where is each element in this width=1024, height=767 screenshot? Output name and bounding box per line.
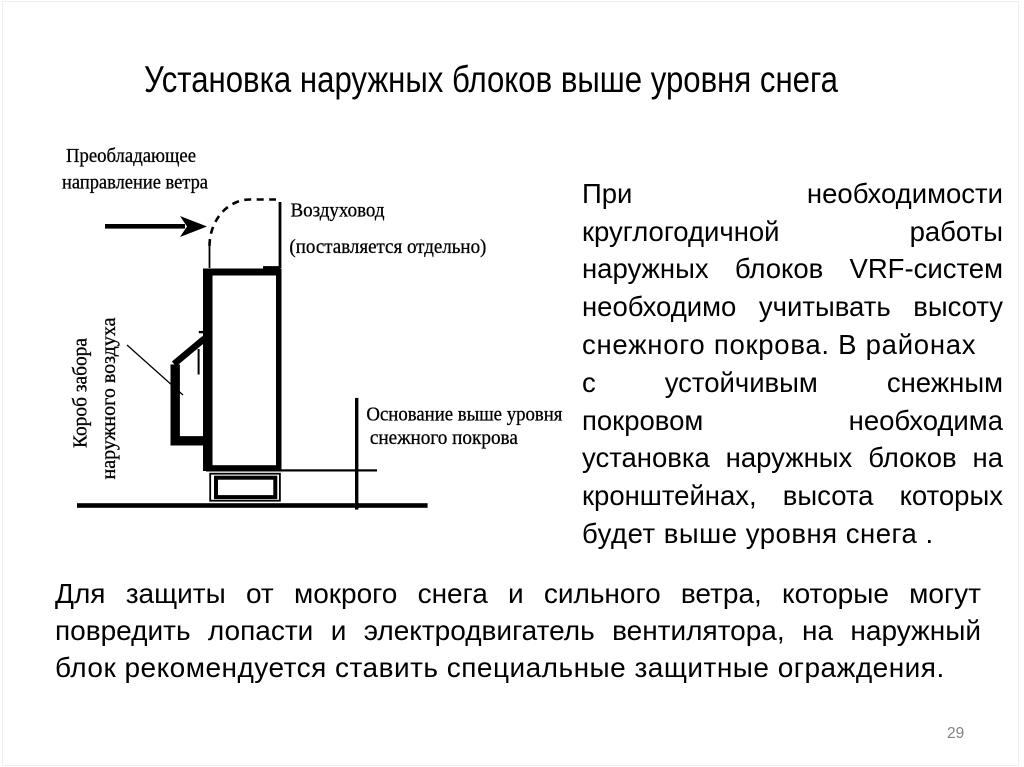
svg-text:(поставляется отдельно): (поставляется отдельно) <box>289 236 486 258</box>
svg-text:направление ветра: направление ветра <box>62 172 208 194</box>
svg-text:снежного покрова: снежного покрова <box>370 427 518 449</box>
svg-text:Основание выше уровня: Основание выше уровня <box>366 404 562 426</box>
svg-text:Воздуховод: Воздуховод <box>291 200 385 222</box>
svg-text:Преобладающее: Преобладающее <box>66 145 196 167</box>
svg-text:наружного воздуха: наружного воздуха <box>98 317 120 479</box>
svg-text:Короб забора: Короб забора <box>70 338 92 448</box>
